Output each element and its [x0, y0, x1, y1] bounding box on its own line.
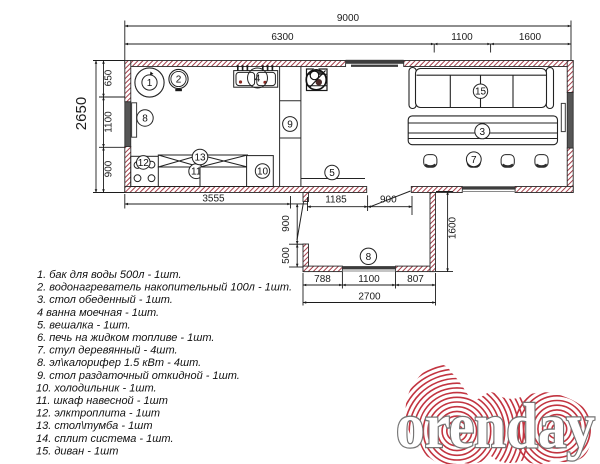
svg-text:8: 8	[142, 114, 148, 125]
svg-text:1600: 1600	[519, 32, 542, 43]
svg-text:11. шкаф навесной - 1шт: 11. шкаф навесной - 1шт	[36, 395, 168, 407]
svg-text:8: 8	[366, 252, 372, 263]
svg-text:9: 9	[287, 120, 293, 131]
svg-text:15. диван - 1шт: 15. диван - 1шт	[36, 445, 118, 457]
svg-text:1100: 1100	[451, 32, 473, 43]
svg-text:5. вешалка - 1шт.: 5. вешалка - 1шт.	[37, 319, 131, 331]
svg-text:1100: 1100	[358, 274, 380, 285]
svg-text:1185: 1185	[325, 195, 347, 206]
svg-text:3. стол обеденный - 1шт.: 3. стол обеденный - 1шт.	[37, 294, 173, 306]
svg-text:2. водонагреватель накопительн: 2. водонагреватель накопительный 100л - …	[36, 282, 292, 294]
svg-text:13. стол\тумба - 1шт: 13. стол\тумба - 1шт	[36, 420, 152, 432]
svg-text:1: 1	[147, 78, 153, 89]
svg-text:15: 15	[475, 87, 487, 98]
svg-text:orenday: orenday	[396, 390, 595, 461]
svg-text:4: 4	[255, 74, 261, 85]
svg-text:1. бак для воды 500л - 1шт.: 1. бак для воды 500л - 1шт.	[37, 269, 182, 281]
svg-text:900: 900	[104, 160, 115, 177]
svg-text:4 ванна моечная - 1шт.: 4 ванна моечная - 1шт.	[37, 307, 159, 319]
svg-text:8. эл\калорифер 1.5 кВт - 4шт.: 8. эл\калорифер 1.5 кВт - 4шт.	[37, 357, 201, 369]
svg-text:7. стул деревянный - 4шт.: 7. стул деревянный - 4шт.	[37, 345, 178, 357]
svg-text:2650: 2650	[73, 97, 90, 130]
svg-text:2: 2	[176, 75, 182, 86]
svg-text:6. печь на жидком топливе - 1ш: 6. печь на жидком топливе - 1шт.	[37, 332, 215, 344]
svg-text:10. холодильник - 1шт.: 10. холодильник - 1шт.	[36, 382, 157, 394]
svg-text:900: 900	[281, 215, 292, 232]
svg-text:6300: 6300	[271, 32, 294, 43]
svg-text:3: 3	[480, 127, 486, 138]
svg-text:9000: 9000	[337, 13, 360, 24]
svg-text:7: 7	[471, 155, 477, 166]
svg-text:9. стол раздаточный откидной -: 9. стол раздаточный откидной - 1шт.	[37, 370, 240, 382]
svg-text:1100: 1100	[104, 111, 115, 133]
svg-text:900: 900	[380, 194, 397, 205]
svg-text:500: 500	[281, 247, 292, 264]
svg-text:14. сплит система - 1шт.: 14. сплит система - 1шт.	[36, 433, 174, 445]
svg-text:12: 12	[138, 158, 150, 169]
svg-text:1600: 1600	[448, 216, 459, 239]
svg-text:12. элктроплита - 1шт: 12. элктроплита - 1шт	[36, 408, 160, 420]
svg-text:788: 788	[314, 274, 331, 285]
svg-text:807: 807	[407, 274, 424, 285]
svg-text:10: 10	[257, 167, 269, 178]
svg-text:650: 650	[104, 69, 115, 86]
svg-text:5: 5	[329, 168, 335, 179]
svg-text:2700: 2700	[358, 292, 381, 303]
svg-text:3555: 3555	[202, 194, 225, 205]
svg-text:13: 13	[194, 153, 206, 164]
